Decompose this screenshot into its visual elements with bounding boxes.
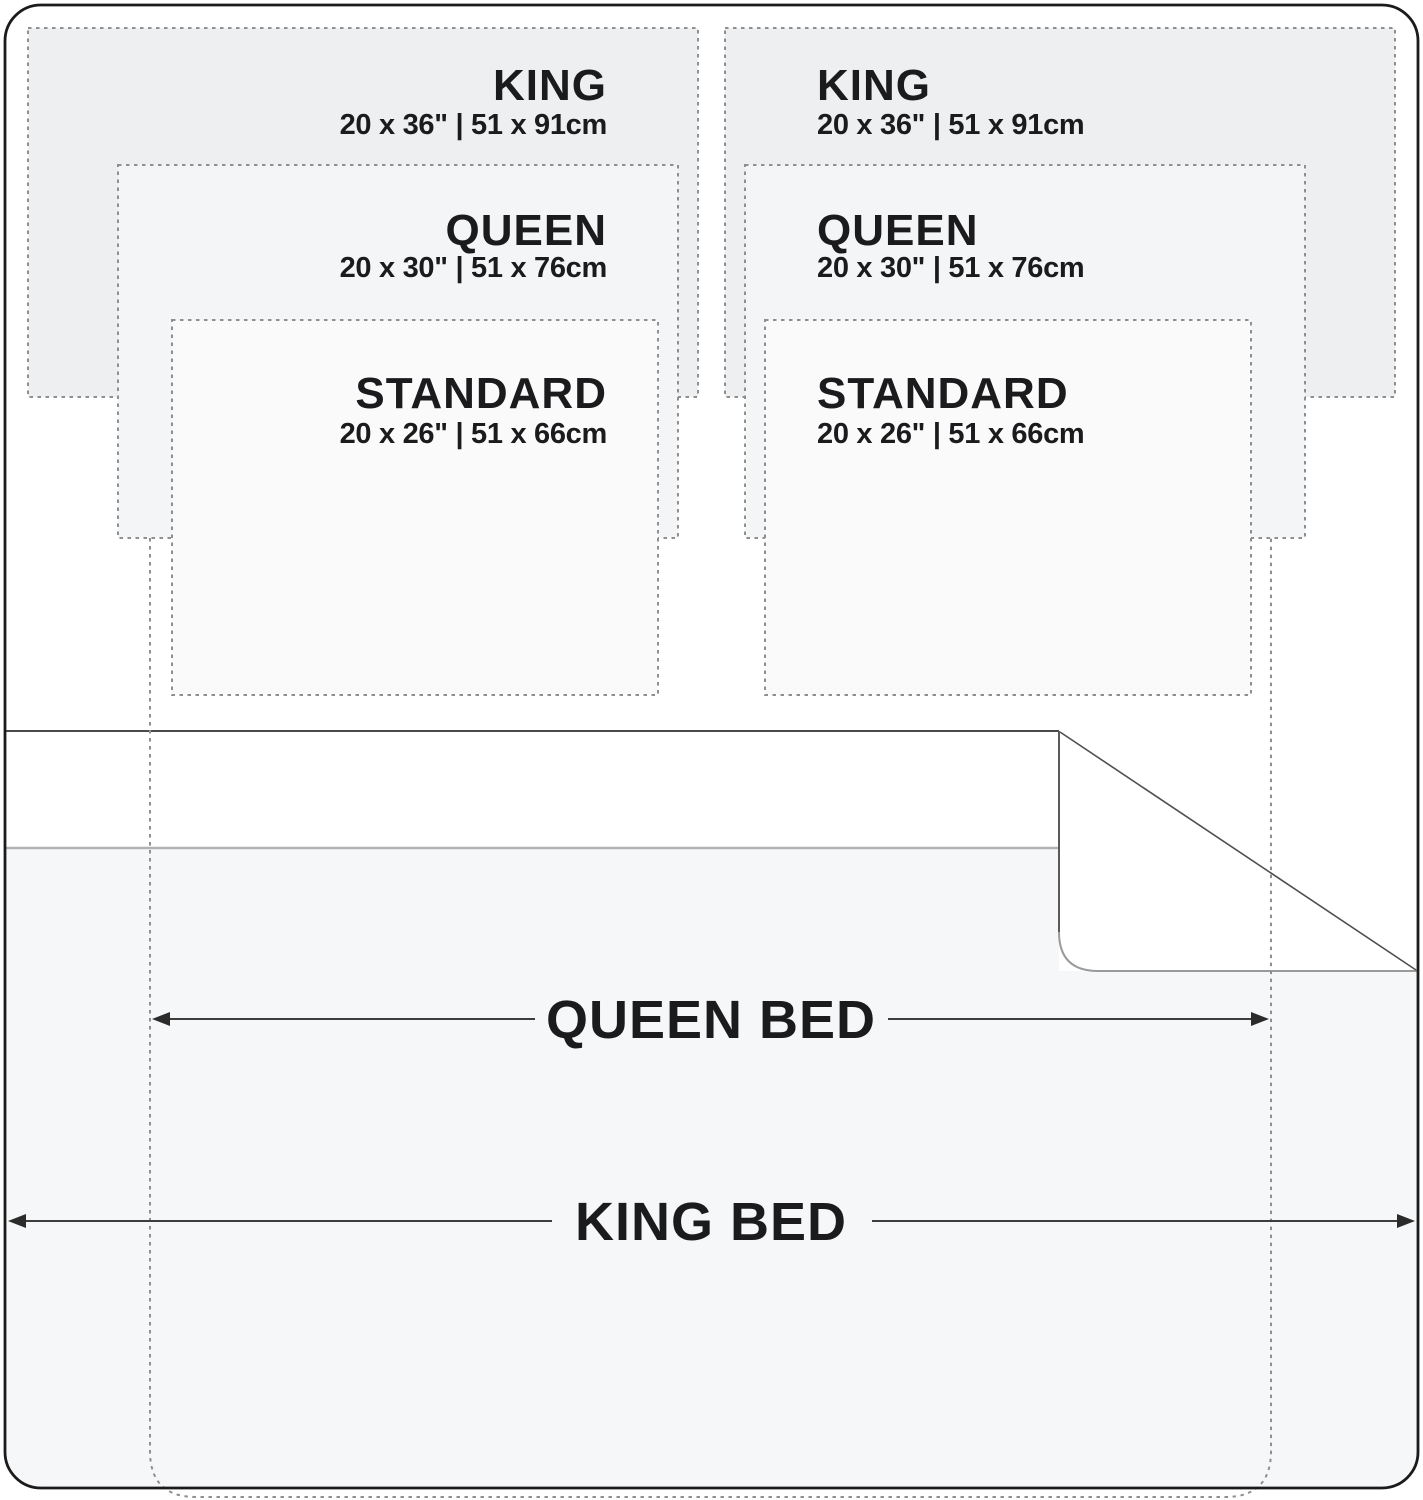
pillow-standard-right-title: STANDARD [817, 369, 1069, 418]
pillow-king-right-dims: 20 x 36" | 51 x 91cm [817, 109, 1084, 141]
pillow-king-right-title: KING [817, 61, 931, 110]
pillow-king-left-title: KING [493, 61, 607, 110]
pillow-size-diagram: KING 20 x 36" | 51 x 91cm QUEEN 20 x 30"… [0, 0, 1423, 1500]
sheet-band [6, 731, 1059, 849]
diagram-canvas: KING 20 x 36" | 51 x 91cm QUEEN 20 x 30"… [0, 0, 1423, 1500]
pillow-queen-right-title: QUEEN [817, 206, 978, 255]
pillow-standard-left-title: STANDARD [355, 369, 607, 418]
pillow-king-left-dims: 20 x 36" | 51 x 91cm [340, 109, 607, 141]
pillow-standard-left-dims: 20 x 26" | 51 x 66cm [340, 418, 607, 450]
pillow-queen-left-title: QUEEN [446, 206, 607, 255]
king-bed-label: KING BED [575, 1192, 847, 1252]
queen-bed-label: QUEEN BED [546, 990, 876, 1050]
pillow-queen-right-dims: 20 x 30" | 51 x 76cm [817, 252, 1084, 284]
pillow-queen-left-dims: 20 x 30" | 51 x 76cm [340, 252, 607, 284]
pillow-standard-right-dims: 20 x 26" | 51 x 66cm [817, 418, 1084, 450]
